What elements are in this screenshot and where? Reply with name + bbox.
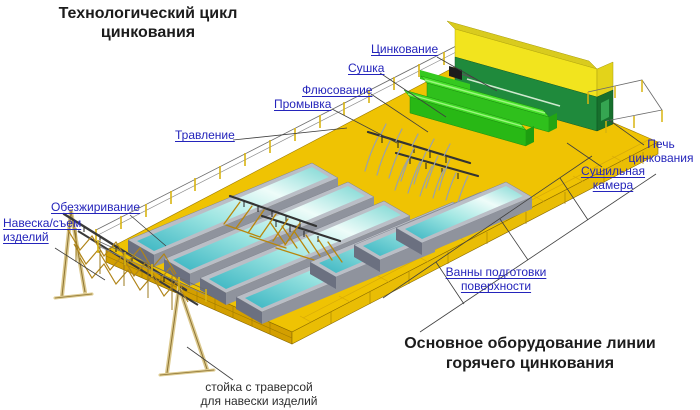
label-pickling: Травление xyxy=(175,128,235,142)
label-degreasing: Обезжиривание xyxy=(51,200,140,214)
label-rinsing: Промывка xyxy=(274,97,331,111)
label-drying-chamber: Сушильная камера xyxy=(572,164,654,192)
diagram-canvas: Технологический цикл цинкования Цинкован… xyxy=(0,0,700,410)
leader-stand xyxy=(187,347,233,380)
label-prep-baths: Ванны подготовки поверхности xyxy=(436,265,556,293)
label-furnace: Печь цинкования xyxy=(622,137,700,165)
label-drying: Сушка xyxy=(348,61,384,75)
stand-caption: стойка с траверсой для навески изделий xyxy=(194,380,324,408)
label-loading: Навеска/съем изделий xyxy=(3,216,89,244)
footer-title: Основное оборудование линии горячего цин… xyxy=(400,334,660,374)
label-fluxing: Флюсование xyxy=(302,83,372,97)
diagram-title: Технологический цикл цинкования xyxy=(38,4,258,42)
label-zinc-plating: Цинкование xyxy=(371,42,438,56)
